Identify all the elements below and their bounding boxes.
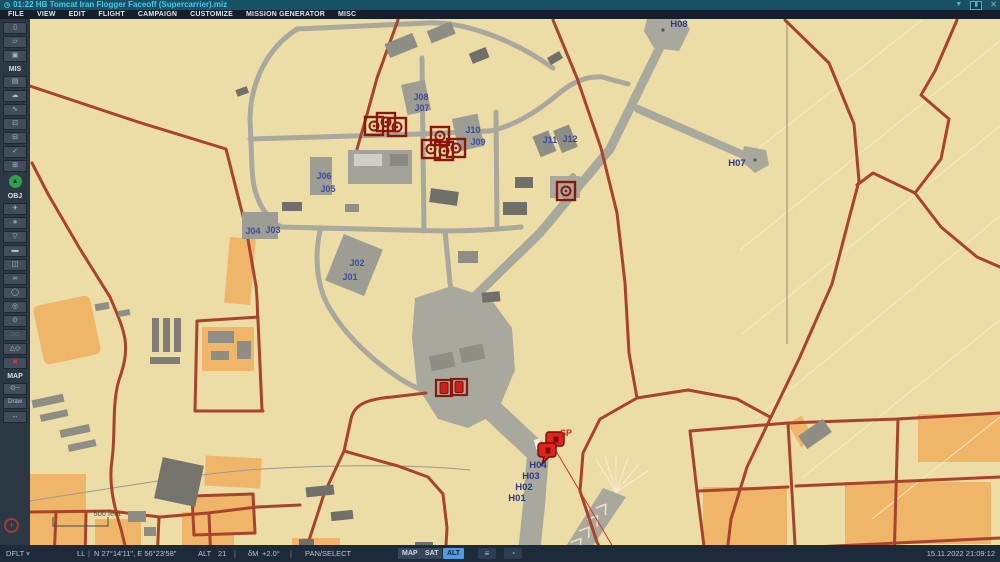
draw-shapes-button[interactable]: △◇ bbox=[3, 343, 27, 355]
grid-toggle-button[interactable]: ◔ bbox=[504, 548, 522, 559]
map-label-h01: H01 bbox=[508, 493, 526, 504]
map-key-button[interactable]: ⊙− bbox=[3, 383, 27, 395]
briefing-button[interactable]: ⊟ bbox=[3, 132, 27, 144]
mouse-mode-label: PAN/SELECT bbox=[305, 545, 351, 562]
map-label-j10: J10 bbox=[465, 125, 480, 135]
fly-mission-button[interactable]: ▲ bbox=[9, 175, 22, 188]
coord-format-label: LL bbox=[77, 545, 85, 562]
altitude-value: 21 bbox=[218, 545, 226, 562]
menu-mission-generator[interactable]: MISSION GENERATOR bbox=[246, 11, 325, 18]
add-helicopter-button[interactable]: ∗ bbox=[3, 217, 27, 229]
bullseye-marker-icon[interactable]: + bbox=[4, 518, 19, 533]
new-mission-button[interactable]: ▯ bbox=[3, 22, 27, 34]
cursor-coordinates: N 27°14'11", E 56°23'58" bbox=[94, 545, 176, 562]
map-label-h03: H03 bbox=[522, 471, 539, 482]
bullseye-button[interactable]: ⊙ bbox=[3, 315, 27, 327]
add-ship-button[interactable]: ▽ bbox=[3, 231, 27, 243]
map-label-j02: J02 bbox=[349, 258, 364, 268]
window-title: 01:22 HB Tomcat Iran Flogger Faceoff (Su… bbox=[13, 0, 227, 9]
triggers-button[interactable]: ⊞ bbox=[3, 160, 27, 172]
validate-button[interactable]: ✓ bbox=[3, 146, 27, 158]
add-static-object-button[interactable]: ◫ bbox=[3, 259, 27, 271]
add-airplane-button[interactable]: ✈ bbox=[3, 203, 27, 215]
toolbar-section-obj: OBJ bbox=[8, 192, 22, 202]
template-button[interactable]: ◎ bbox=[3, 301, 27, 313]
weather-button[interactable]: ☁ bbox=[3, 90, 27, 102]
network-icon: ▼ bbox=[955, 0, 962, 10]
view-map-button[interactable]: MAP bbox=[398, 548, 422, 559]
menu-bar: FILE VIEW EDIT FLIGHT CAMPAIGN CUSTOMIZE… bbox=[0, 10, 1000, 19]
map-canvas[interactable]: H08H07J08J07J10J09J11J12J06J05J04J03J02J… bbox=[30, 19, 1000, 545]
menu-edit[interactable]: EDIT bbox=[69, 11, 86, 18]
map-label-j04: J04 bbox=[245, 226, 260, 236]
delete-object-button[interactable]: ✖ bbox=[3, 357, 27, 369]
map-label-j06: J06 bbox=[316, 171, 331, 181]
magvar-value: +2.0° bbox=[262, 545, 280, 562]
datetime-display: 15.11.2022 21:09:12 bbox=[927, 545, 995, 562]
map-label-500-feet: 500 feet bbox=[93, 509, 121, 518]
clock-icon: ◷ bbox=[4, 2, 10, 9]
title-bar: ◷01:22 HB Tomcat Iran Flogger Faceoff (S… bbox=[0, 0, 1000, 10]
map-label-j03: J03 bbox=[265, 225, 280, 235]
magvar-label: δM bbox=[248, 545, 258, 562]
add-vehicle-button[interactable]: ▬ bbox=[3, 245, 27, 257]
mission-options-button[interactable]: ▤ bbox=[3, 76, 27, 88]
menu-customize[interactable]: CUSTOMIZE bbox=[190, 11, 233, 18]
status-bar: DFLT ▾ LL | N 27°14'11", E 56°23'58" ALT… bbox=[0, 545, 1000, 562]
map-label-j07: J07 bbox=[414, 103, 429, 113]
menu-file[interactable]: FILE bbox=[8, 11, 24, 18]
draw-button[interactable]: Draw bbox=[3, 397, 27, 409]
open-mission-button[interactable]: ▱ bbox=[3, 36, 27, 48]
helipad-dot bbox=[661, 28, 664, 31]
menu-campaign[interactable]: CAMPAIGN bbox=[138, 11, 177, 18]
scale-bar-button[interactable]: ≡ bbox=[478, 548, 496, 559]
view-alt-button[interactable]: ALT bbox=[443, 548, 464, 559]
map-label-h08: H08 bbox=[670, 19, 687, 30]
map-label-h02: H02 bbox=[515, 482, 532, 493]
controls-indicator-icon[interactable]: ▮ bbox=[970, 1, 982, 10]
menu-misc[interactable]: MISC bbox=[338, 11, 356, 18]
menu-flight[interactable]: FLIGHT bbox=[98, 11, 124, 18]
close-icon[interactable]: ✕ bbox=[990, 0, 997, 10]
map-label-j11: J11 bbox=[543, 135, 558, 145]
helipad-dot bbox=[753, 158, 756, 161]
route-tool-button[interactable]: ∿ bbox=[3, 104, 27, 116]
map-label-j05: J05 bbox=[320, 184, 335, 194]
left-toolbar: + ▯▱▣MIS▤☁∿⊡⊟✓⊞▲OBJ✈∗▽▬◫∞◯◎⊙◌◌△◇✖MAP⊙−Dr… bbox=[0, 19, 30, 545]
late-activation-button[interactable]: ∞ bbox=[3, 273, 27, 285]
map-label-h07: H07 bbox=[728, 158, 745, 169]
trigger-zone-button[interactable]: ◯ bbox=[3, 287, 27, 299]
map-label-j09: J09 bbox=[470, 137, 485, 147]
map-label-j08: J08 bbox=[413, 92, 428, 102]
altitude-label: ALT bbox=[198, 545, 211, 562]
map-label-j01: J01 bbox=[342, 272, 357, 282]
view-sat-button[interactable]: SAT bbox=[421, 548, 442, 559]
measure-distance-button[interactable]: ↔ bbox=[3, 411, 27, 423]
menu-view[interactable]: VIEW bbox=[37, 11, 56, 18]
unit-list-button[interactable]: ◌◌ bbox=[3, 329, 27, 341]
goals-button[interactable]: ⊡ bbox=[3, 118, 27, 130]
mission-editor-window: ◷01:22 HB Tomcat Iran Flogger Faceoff (S… bbox=[0, 0, 1000, 562]
toolbar-section-map: MAP bbox=[7, 372, 23, 382]
toolbar-section-mis: MIS bbox=[9, 65, 21, 75]
map-label-j12: J12 bbox=[562, 134, 577, 144]
map-label-h04: H04 bbox=[529, 460, 547, 471]
map-label-sp: SP bbox=[560, 428, 572, 438]
map-preset-dropdown[interactable]: DFLT ▾ bbox=[6, 545, 30, 562]
save-mission-button[interactable]: ▣ bbox=[3, 50, 27, 62]
